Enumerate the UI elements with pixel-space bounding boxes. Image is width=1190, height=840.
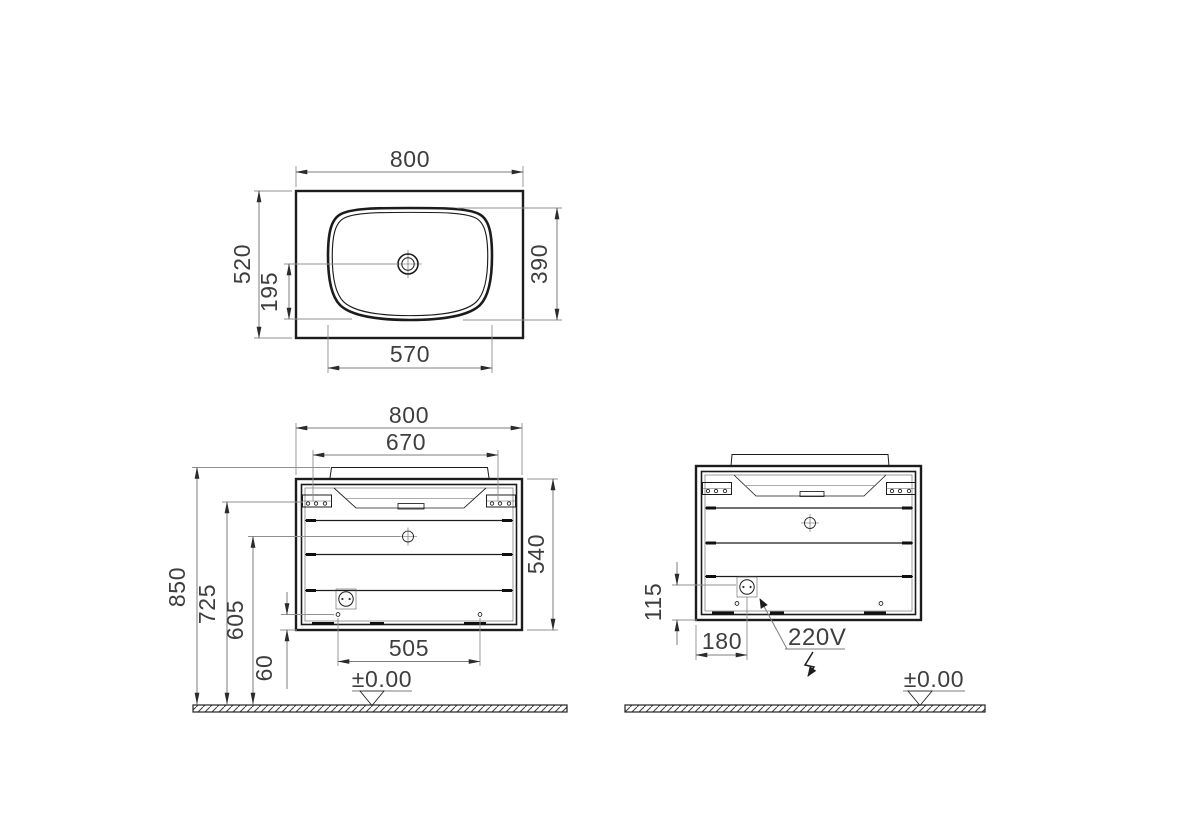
- dim-front-cabinet-height: 540: [523, 479, 558, 630]
- front-view: 800 670 540 850 725 605: [164, 402, 567, 712]
- technical-drawing-page: 800 520 195 390 570: [0, 0, 1190, 840]
- dim-label-front-60: 60: [251, 655, 277, 682]
- drain-center-mark: [399, 528, 417, 546]
- dim-front-hole-offset: 60: [251, 592, 334, 689]
- washbasin-rim-outline-back: [731, 455, 889, 467]
- lightning-bolt-icon: [805, 652, 814, 676]
- basin-underside-outline-back: [734, 475, 886, 497]
- dim-label-front-850: 850: [164, 567, 190, 607]
- floor-datum-left: ±0.00: [352, 666, 412, 706]
- floor-datum-right: ±0.00: [903, 666, 965, 706]
- dim-label-front-605: 605: [222, 600, 248, 640]
- dim-label-front-670: 670: [386, 429, 426, 455]
- fixing-hole-left: [336, 613, 340, 617]
- dim-label-top-520: 520: [229, 244, 255, 284]
- voltage-label: 220V: [788, 624, 846, 651]
- dim-label-back-115: 115: [640, 583, 666, 621]
- socket-symbol-front: [336, 589, 356, 609]
- datum-label-left: ±0.00: [352, 666, 412, 692]
- fixing-hole-right-back: [879, 602, 883, 606]
- floor-line-left: [193, 705, 567, 712]
- dim-label-top-195: 195: [256, 272, 282, 312]
- dim-label-top-570: 570: [390, 341, 430, 367]
- mounting-rail-left: [303, 495, 332, 507]
- drain-center-mark-back: [801, 514, 819, 532]
- dim-label-back-180: 180: [702, 628, 742, 654]
- dim-label-front-800: 800: [389, 402, 429, 428]
- technical-drawing-canvas: 800 520 195 390 570: [0, 0, 1190, 840]
- mounting-rail-right-back: [887, 483, 916, 495]
- dim-top-overall-depth: 520: [229, 191, 292, 338]
- dim-back-socket-offset: 180: [696, 597, 747, 660]
- dim-top-overall-width: 800: [296, 146, 523, 187]
- basin-underside-outline: [334, 488, 486, 509]
- shelf-lines-back: [705, 508, 913, 613]
- socket-symbol-back: [737, 577, 757, 597]
- dim-label-top-800: 800: [390, 146, 430, 172]
- mounting-rail-left-back: [703, 483, 732, 495]
- mounting-rail-right: [487, 495, 516, 507]
- top-view: 800 520 195 390 570: [229, 146, 562, 373]
- dim-top-basin-depth: 390: [457, 208, 562, 320]
- fixing-hole-right: [478, 613, 482, 617]
- fixing-hole-left-back: [735, 602, 739, 606]
- dim-label-top-390: 390: [526, 244, 552, 284]
- drain-symbol: [394, 250, 422, 278]
- datum-triangle-left: [360, 691, 384, 706]
- floor-line-right: [625, 705, 985, 712]
- socket-voltage-callout: 220V: [760, 599, 846, 676]
- dim-top-basin-width: 570: [328, 325, 492, 373]
- washbasin-rim-outline: [330, 468, 489, 479]
- dim-top-drain-offset: 195: [256, 264, 398, 319]
- dim-label-front-540: 540: [523, 534, 549, 574]
- dim-label-front-505: 505: [389, 635, 429, 661]
- dim-label-front-725: 725: [194, 584, 220, 624]
- datum-triangle-right: [908, 691, 932, 706]
- back-view: 115 180 220V ±0.00: [625, 455, 985, 713]
- dim-front-bracket-span: 670: [313, 429, 498, 501]
- datum-label-right: ±0.00: [904, 666, 964, 692]
